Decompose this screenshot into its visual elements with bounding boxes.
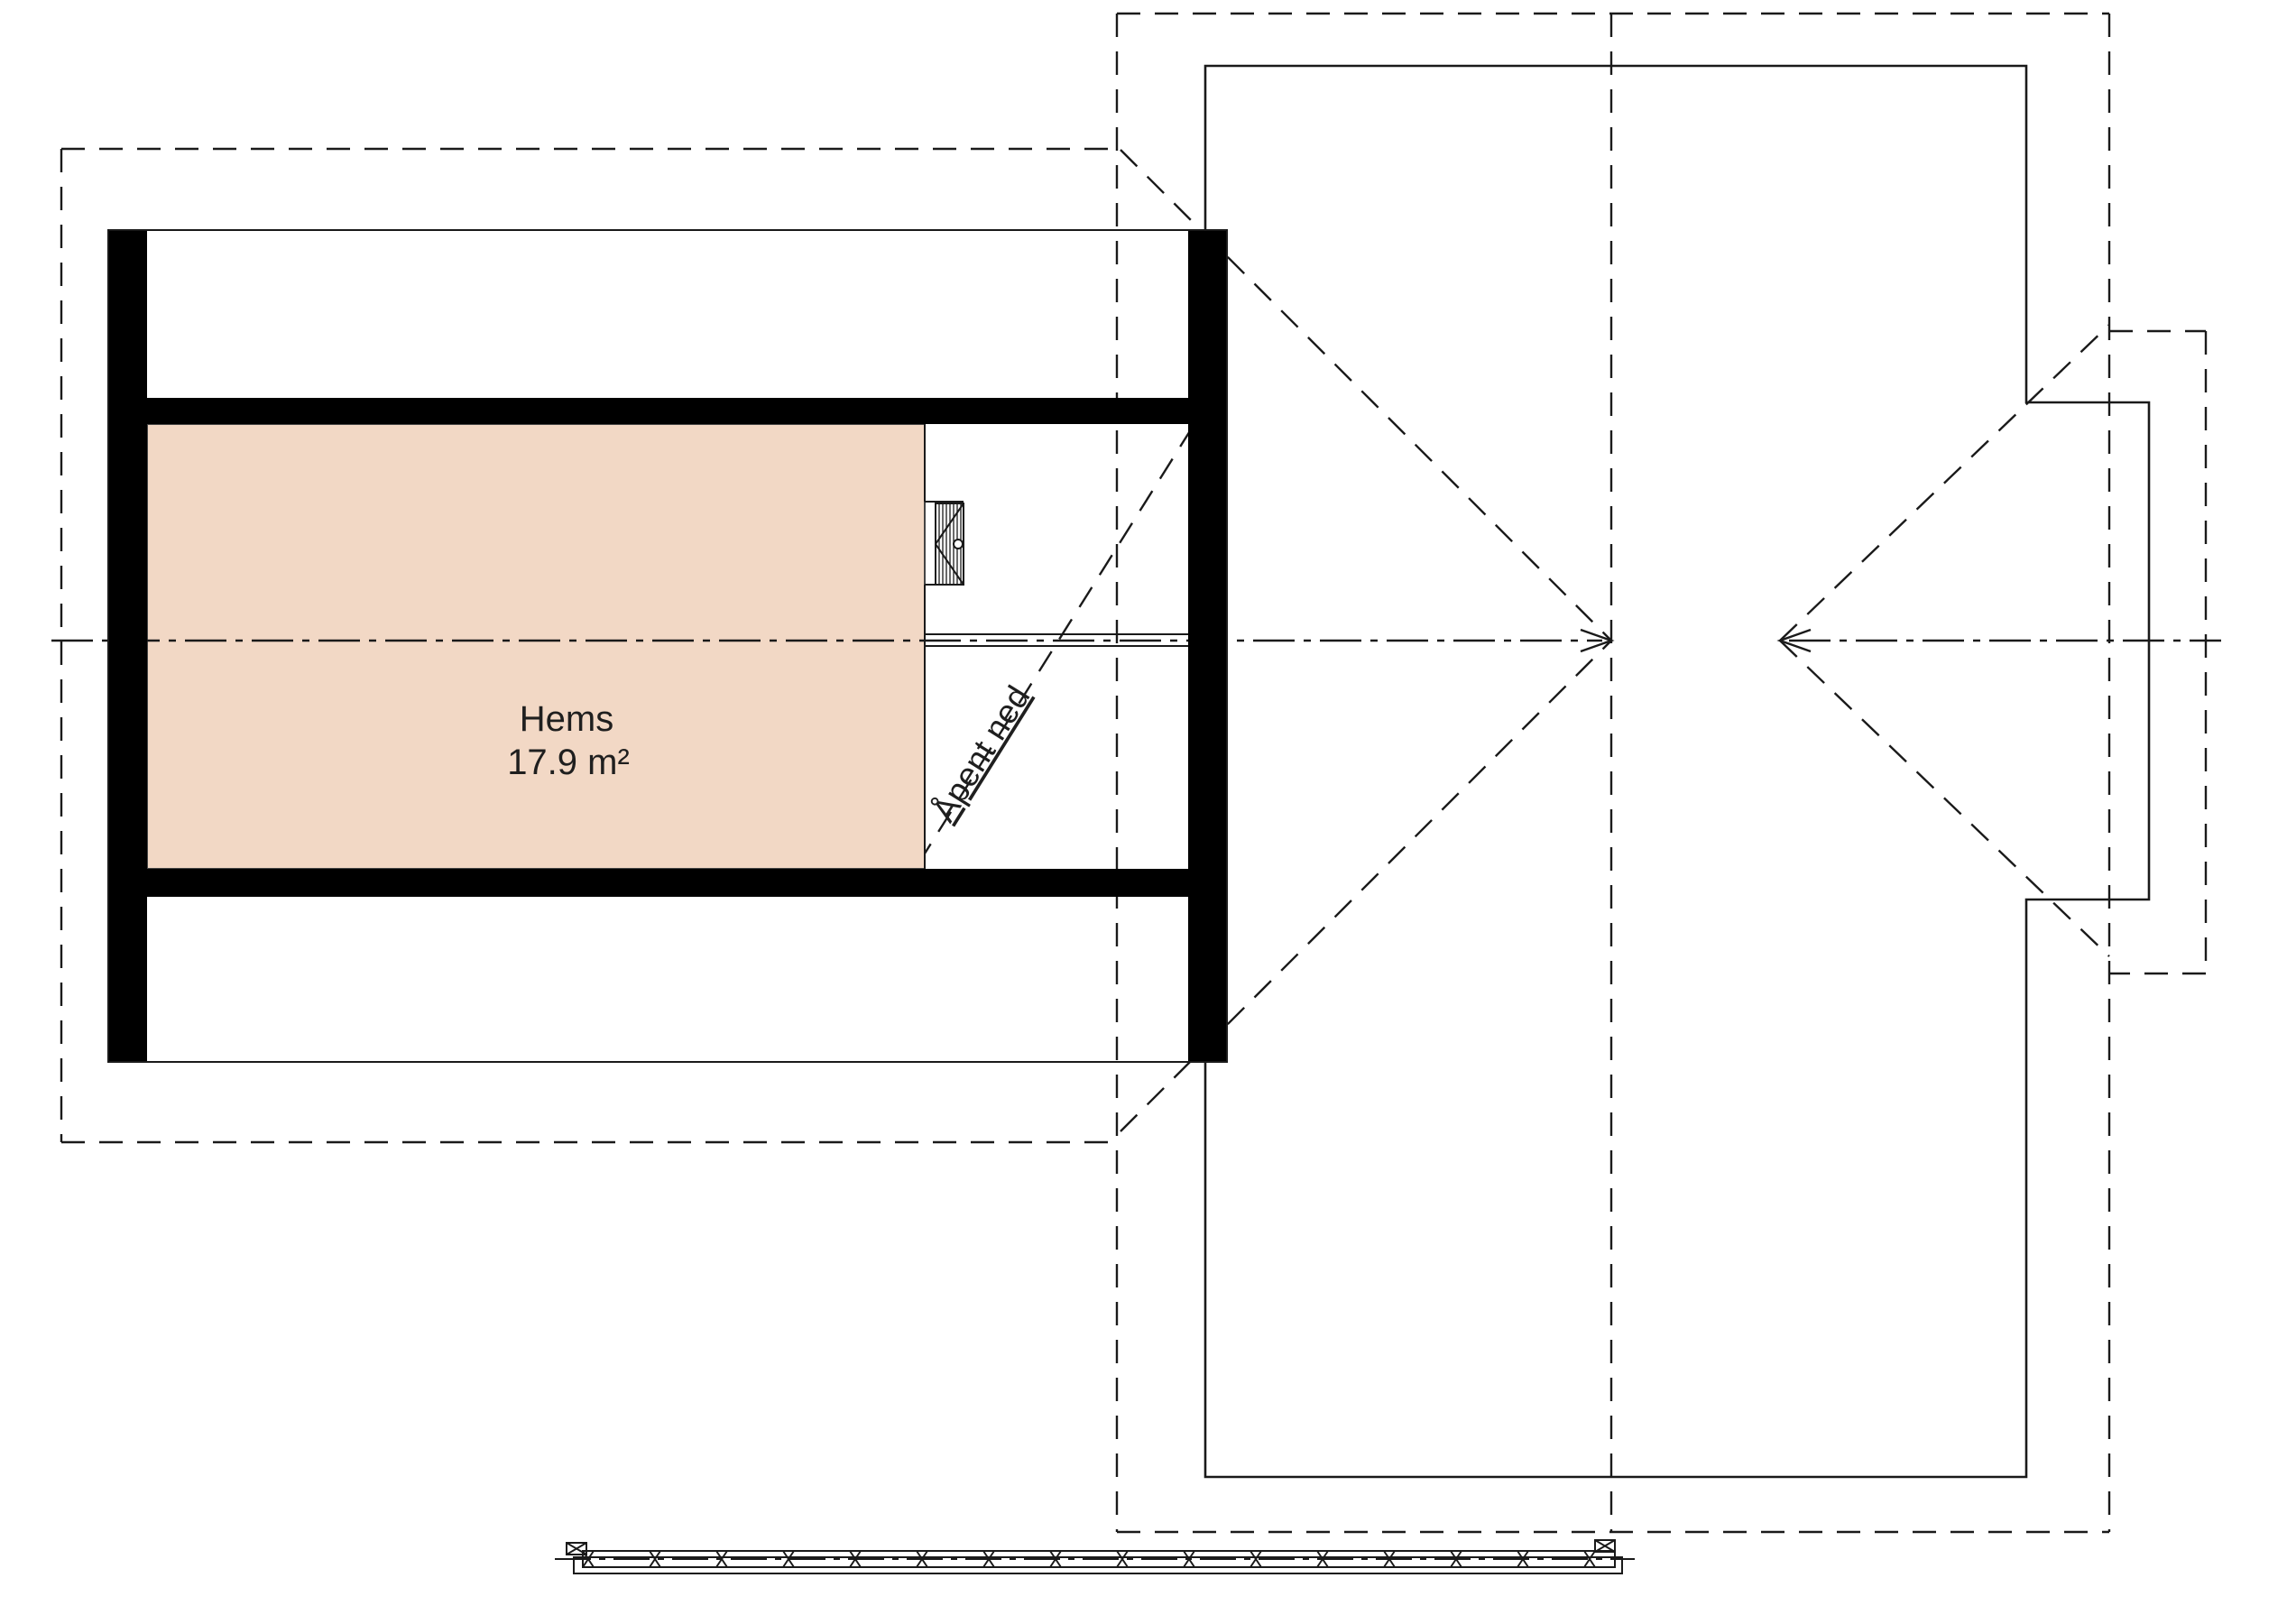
loft-room bbox=[147, 424, 925, 869]
wall-right bbox=[1188, 230, 1227, 1062]
hip-line-ne bbox=[1780, 325, 2109, 641]
hip-line-se bbox=[1780, 641, 2109, 956]
floor-plan-drawing: Hems 17.9 m² Åpent ned bbox=[0, 0, 2287, 1624]
right-building-walls bbox=[1205, 66, 2149, 1477]
beam-detail bbox=[555, 1540, 1635, 1573]
loft-ladder-icon bbox=[936, 503, 964, 585]
beam-end-caps bbox=[567, 1540, 1615, 1555]
wall-left bbox=[108, 230, 147, 1062]
floor-plan-canvas: Hems 17.9 m² Åpent ned bbox=[0, 0, 2287, 1624]
loft-room-fill bbox=[147, 424, 925, 869]
ladder-pivot bbox=[954, 540, 963, 549]
room-name-label: Hems bbox=[520, 699, 613, 739]
open-below-label: Åpent ned bbox=[925, 679, 1037, 828]
room-area-label: 17.9 m² bbox=[507, 743, 630, 782]
wall-upper bbox=[147, 398, 1191, 424]
right-building-outline bbox=[1205, 66, 2149, 1477]
wall-lower bbox=[147, 869, 1191, 897]
